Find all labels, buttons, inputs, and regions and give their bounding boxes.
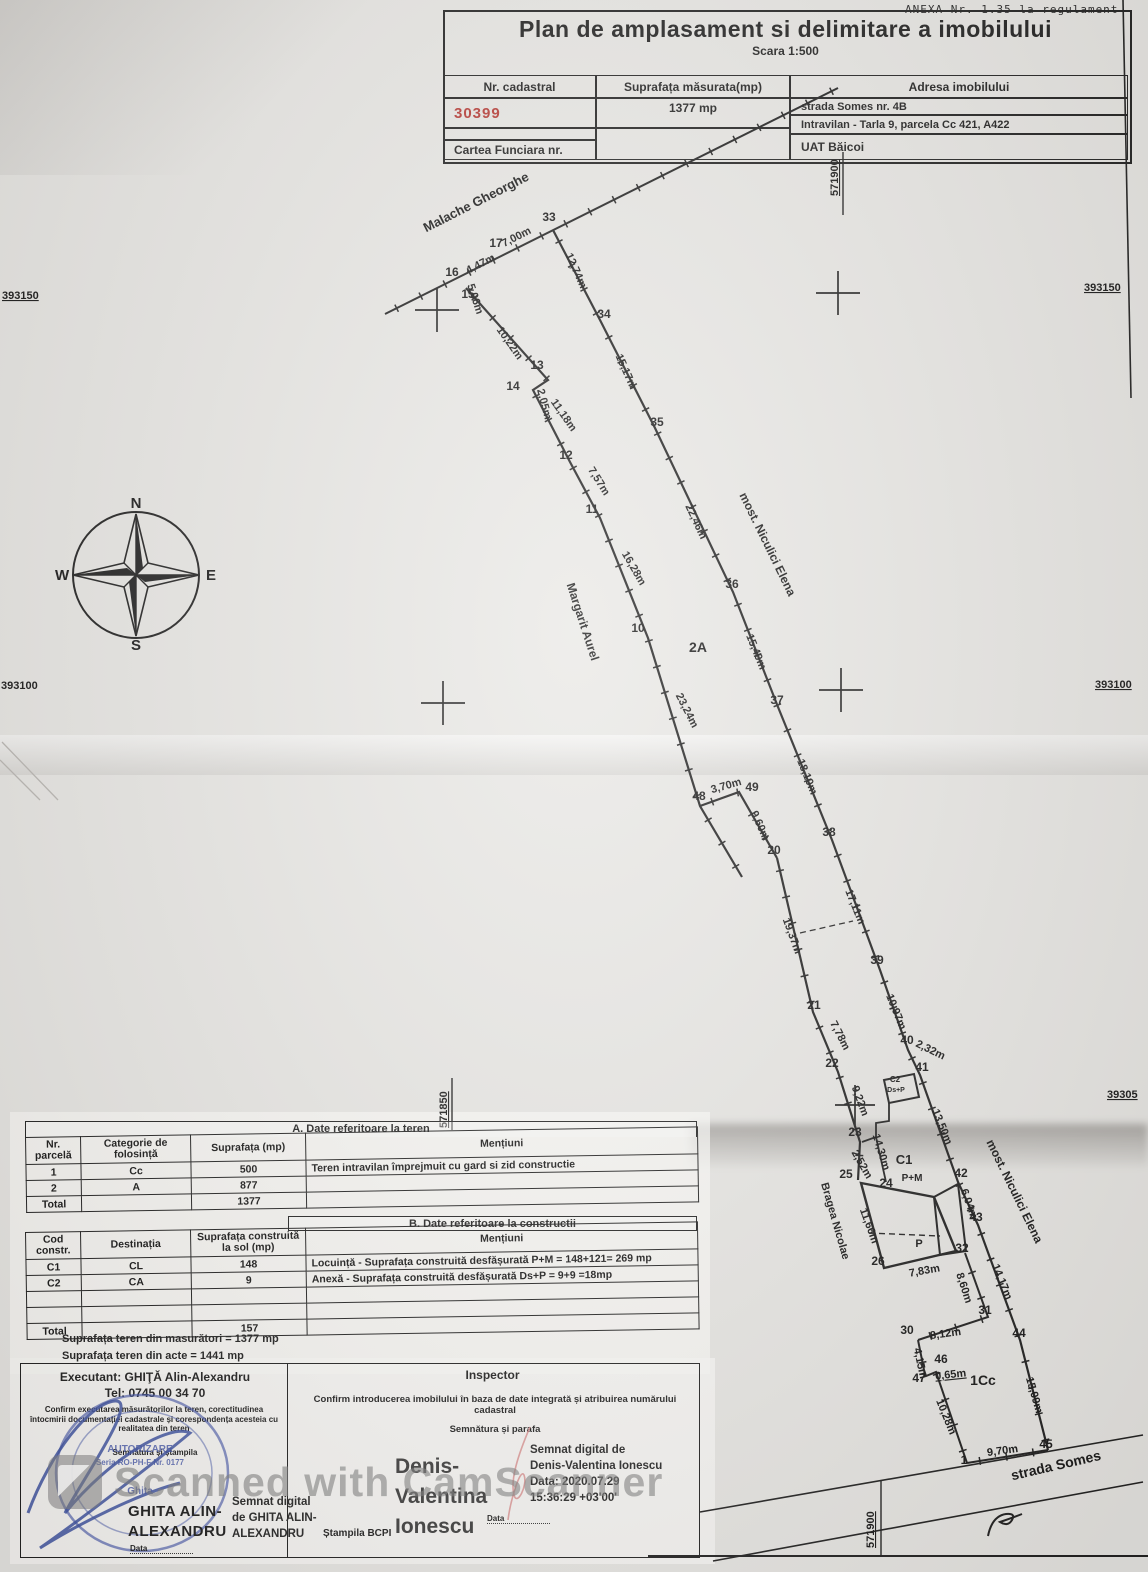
grid-crosses [415,271,875,1125]
parcel-label: P [915,1238,922,1250]
point-number-label: 35 [650,415,664,429]
point-number-label: 12 [559,448,573,462]
table-cell: 1377 [191,1192,306,1210]
table-header-cell: Destinația [81,1230,191,1259]
table-cell: 2 [26,1180,81,1197]
distance-label: 17,11m [842,888,867,927]
distance-label: 15,09m [1023,1376,1045,1415]
grid-coordinate-label: 39305 [1107,1089,1138,1101]
point-number-label: 25 [839,1167,853,1181]
table-cell: 1 [26,1164,81,1181]
point-number-label: 34 [597,307,611,321]
table-cell [81,1194,191,1212]
boundary-tick [1022,1360,1030,1362]
point-number-label: 14 [506,379,520,393]
compass-s: S [131,637,141,654]
point-number-label: 48 [692,789,706,803]
table-cell [27,1307,82,1324]
boundary-tick [782,896,790,898]
table-header-cell: Suprafața construită la sol (mp) [190,1228,305,1257]
point-number-label: 24 [879,1176,893,1190]
inspector-digital-l2: Denis-Valentina Ionescu [530,1458,662,1474]
table-cell: 500 [191,1160,306,1178]
distance-label: 7,83m [908,1262,941,1279]
distance-label: 13,50m [929,1107,954,1146]
compass-w: W [55,567,70,584]
parcel-label: P+M [902,1173,923,1184]
distance-label: 14,30m [870,1133,892,1172]
fence-line-north [385,88,838,314]
distance-label: 15,40m [743,632,768,671]
table-cell: Total [26,1196,81,1213]
inspector-name-l2: Valentina [395,1482,487,1512]
scanned-cadastral-plan-page: ANEXA Nr. 1.35 la regulament Plan de amp… [0,0,1148,1572]
grid-coordinate-label: 393100 [1095,679,1132,691]
inspector-digital-l1: Semnat digital de [530,1442,625,1458]
inspector-digital-l3: Data: 2020.07.29 [530,1474,620,1490]
distance-label: 10,97m [883,992,908,1031]
distance-label: 19,37m [780,916,804,955]
parcel-label: Ds+P [887,1087,905,1094]
neighbour-name-label: strada Somes [1009,1447,1102,1483]
executant-digital-l3: ALEXANDRU [232,1526,304,1542]
executant-data-label: Data [130,1544,193,1554]
stamp-autorizare: AUTORIZARE [70,1444,210,1455]
point-number-label: 44 [1012,1326,1026,1340]
street-line-near [700,1435,1143,1512]
pen-squiggle [988,1514,1022,1536]
grid-coordinate-label: 393150 [1084,282,1121,294]
point-number-label: 39 [870,953,884,967]
table-cell [192,1303,307,1321]
inspector-confirm-text: Confirm introducerea imobilului în baza … [300,1394,690,1416]
point-number-label: 1 [961,1453,968,1467]
table-b-constructii: Cod constr.DestinațiaSuprafața construit… [25,1221,700,1340]
inspector-data-label: Data [487,1514,550,1524]
neighbour-name-label: most. Niculici Elena [983,1137,1045,1245]
point-number-label: 37 [770,693,784,707]
table-cell: 9 [191,1271,306,1289]
grid-coordinate-label: 393150 [2,290,39,302]
stampila-bcpi-label: Ștampila BCPI [323,1528,391,1539]
table-cell [191,1287,306,1305]
point-number-label: 22 [825,1056,839,1070]
distance-label: 9,22m [849,1084,871,1118]
point-number-label: 45 [1039,1437,1053,1451]
boundary-tick [1033,1448,1034,1456]
table-cell: CL [81,1257,191,1275]
boundary-tick [776,870,784,872]
table-cell: C1 [26,1259,81,1276]
point-number-label: 33 [542,210,556,224]
table-a-teren: Nr. parcelăCategorie de folosințăSuprafa… [25,1126,699,1213]
point-number-label: 49 [745,780,759,794]
distance-label: 14,17m [989,1262,1014,1301]
distance-label: 18,10m [794,757,819,796]
distance-label: 8,12m [929,1326,962,1342]
point-number-label: 40 [900,1033,914,1047]
distance-label: 16,28m [619,549,648,587]
table-cell [26,1291,81,1308]
distance-label: 9,60m [748,809,772,843]
table-header-cell: Categorie de folosință [81,1135,191,1164]
crease-marks [0,742,58,800]
executant-digital-l1: Semnat digital [232,1494,311,1510]
neighbour-name-label: Margarit Aurel [564,581,602,662]
distance-label: 4,47m [464,252,497,277]
parcel-label: C2 [890,1075,901,1084]
distance-label: 15,17m [613,352,639,391]
distance-label: 22,46m [682,502,709,541]
neighbour-name-label: Bragea Nicolae [818,1181,851,1261]
point-number-label: 38 [822,825,836,839]
point-number-label: 20 [767,843,781,857]
point-number-label: 42 [954,1166,968,1180]
grid-coordinate-label: 571900 [865,1511,877,1548]
stamp-seria: Seria RO-PH-F Nr. 0177 [60,1458,220,1467]
distance-label: 10,22m [494,325,525,363]
table-cell: 148 [191,1255,306,1273]
parcel-label: C1 [896,1152,913,1167]
boundary-tick [801,975,809,977]
grid-coordinate-label: 393100 [1,680,38,692]
distance-label: 11,66m [857,1207,881,1246]
summary-acte: Suprafața teren din acte = 1441 mp [62,1350,244,1362]
table-cell [82,1305,192,1323]
table-cell [81,1289,191,1307]
inspector-name-l1: Denis- [395,1452,459,1482]
point-number-label: 11 [586,502,599,516]
point-number-label: 13 [530,358,544,372]
executant-digital-l2: de GHITA ALIN- [232,1510,317,1526]
table-cell: A [81,1178,191,1196]
point-number-label: 36 [725,577,739,591]
point-number-label: 21 [807,998,821,1012]
parcel-label: 1Cc [970,1372,996,1388]
point-number-label: 31 [978,1303,992,1317]
table-cell: C2 [26,1275,81,1292]
point-number-label: 41 [915,1060,929,1074]
point-number-label: 23 [848,1125,862,1139]
table-cell: CA [81,1273,191,1291]
point-number-label: 46 [934,1352,948,1366]
stamp-name: Ghita [95,1486,185,1497]
page-edge-line [1123,0,1131,398]
distance-label: 23,24m [673,691,701,730]
distance-label: 10,28m [933,1397,958,1436]
grid-coordinate-label: 571900 [829,159,841,196]
table-header-cell: Suprafața (mp) [190,1133,305,1162]
point-number-label: 26 [871,1254,885,1268]
neighbour-name-label: most. Niculici Elena [736,490,798,598]
neighbour-name-label: Malache Gheorghe [421,169,531,235]
table-header-cell: Cod constr. [26,1232,81,1260]
boundary-tick [737,789,739,797]
table-cell: Cc [81,1162,191,1180]
compass-n: N [131,495,142,512]
street-line-far [713,1482,1143,1561]
compass-e: E [206,567,216,584]
table-header-cell: Nr. parcelă [26,1137,81,1165]
inspector-name-l3: Ionescu [395,1512,474,1542]
semnatura-parafa-label: Semnătura și parafa [300,1424,690,1435]
point-number-label: 10 [631,621,645,635]
distance-label: 7,57m [585,465,612,498]
point-number-label: 30 [900,1323,914,1337]
executant-digital-name-line2: ALEXANDRU [128,1522,227,1542]
inspector-label: Inspector [290,1368,695,1382]
point-number-label: 32 [955,1241,969,1255]
inspector-digital-l4: 15:36:29 +03'00' [530,1490,617,1506]
table-cell: 877 [191,1176,306,1194]
distance-label: 7,78m [827,1019,852,1052]
distance-label: 2,32m [914,1038,947,1063]
parcel-division-dashed [800,921,853,933]
compass-rose [73,512,199,638]
summary-masuratori: Suprafața teren din masurători = 1377 mp [62,1333,279,1345]
parcel-label: 2A [689,639,707,655]
executant-digital-name-line1: GHITA ALIN- [128,1502,222,1522]
distance-label: 12,74m [563,251,589,290]
point-number-label: 16 [445,265,459,279]
distance-label: 0,65m [935,1367,967,1382]
distance-label: 8,60m [953,1271,974,1305]
